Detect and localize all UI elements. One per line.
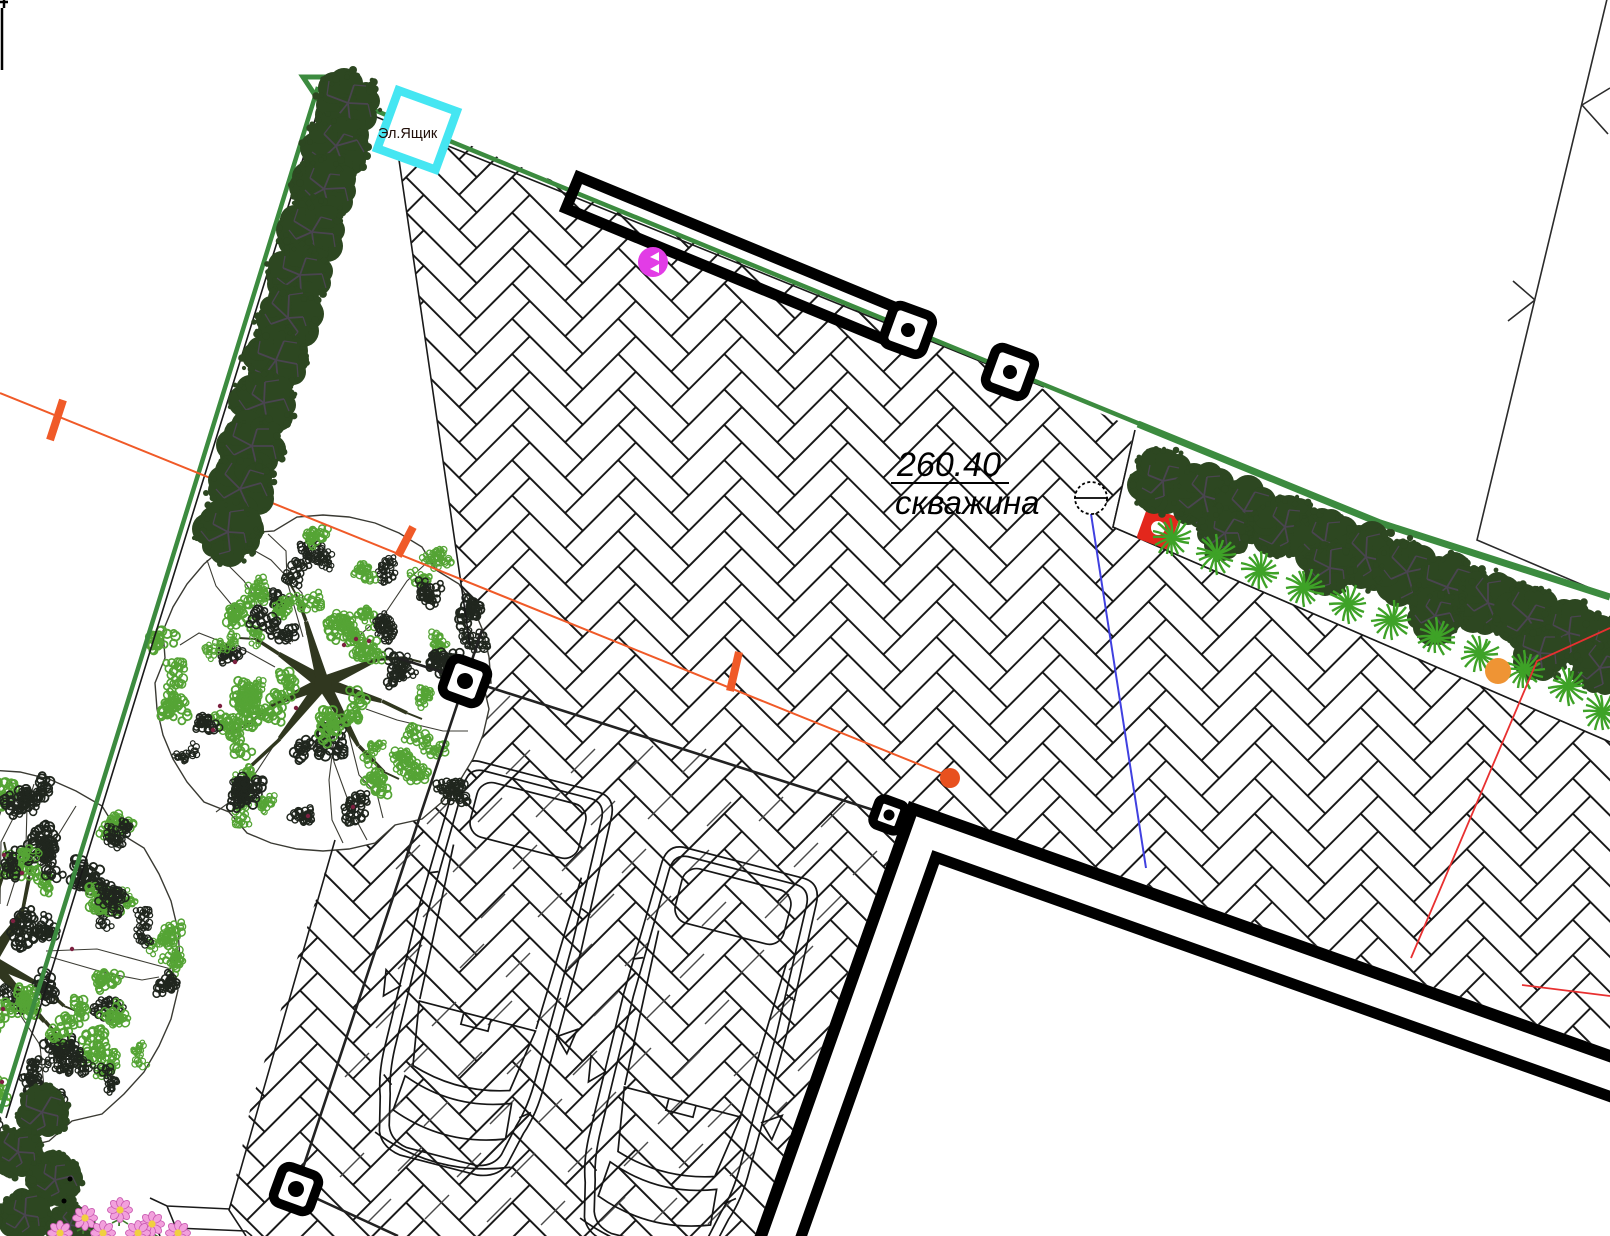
svg-text:скважина: скважина	[895, 484, 1040, 521]
svg-text:260.40: 260.40	[896, 446, 1001, 484]
svg-text:Эл.Ящик: Эл.Ящик	[378, 126, 438, 142]
